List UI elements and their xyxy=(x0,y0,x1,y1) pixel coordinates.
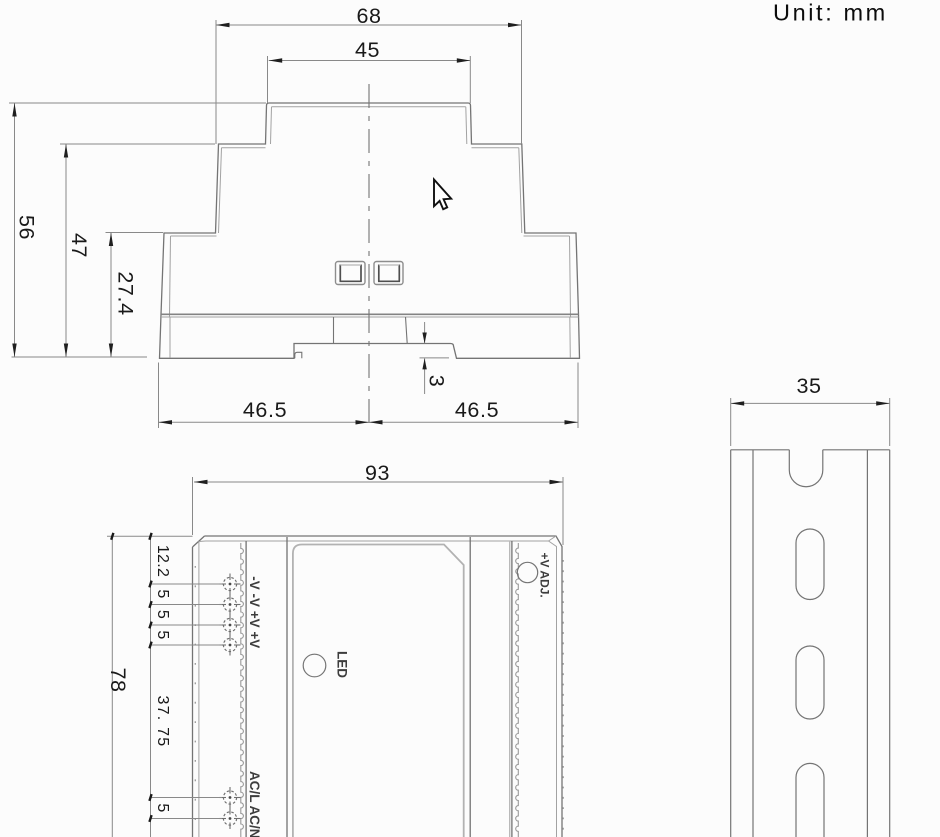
svg-text:5: 5 xyxy=(154,610,171,619)
svg-text:46.5: 46.5 xyxy=(243,398,287,422)
svg-text:37. 75: 37. 75 xyxy=(154,696,171,747)
svg-text:27.4: 27.4 xyxy=(114,271,138,315)
svg-text:56: 56 xyxy=(15,215,39,240)
svg-text:45: 45 xyxy=(355,38,380,62)
svg-text:+V ADJ.: +V ADJ. xyxy=(538,553,552,598)
svg-text:Unit: mm: Unit: mm xyxy=(773,0,888,26)
svg-text:LED: LED xyxy=(335,651,350,678)
svg-text:78: 78 xyxy=(106,667,130,692)
svg-text:-V -V +V +V: -V -V +V +V xyxy=(247,576,262,648)
svg-text:5: 5 xyxy=(154,630,171,639)
svg-text:5: 5 xyxy=(154,589,171,598)
svg-text:35: 35 xyxy=(796,374,821,398)
svg-text:AC/L AC/N: AC/L AC/N xyxy=(247,771,262,837)
svg-text:3: 3 xyxy=(425,375,449,388)
svg-text:47: 47 xyxy=(67,233,91,258)
svg-text:68: 68 xyxy=(356,4,381,28)
svg-text:46.5: 46.5 xyxy=(455,398,499,422)
svg-text:93: 93 xyxy=(365,461,390,485)
svg-text:5: 5 xyxy=(154,803,171,812)
svg-text:12.2: 12.2 xyxy=(154,545,171,577)
